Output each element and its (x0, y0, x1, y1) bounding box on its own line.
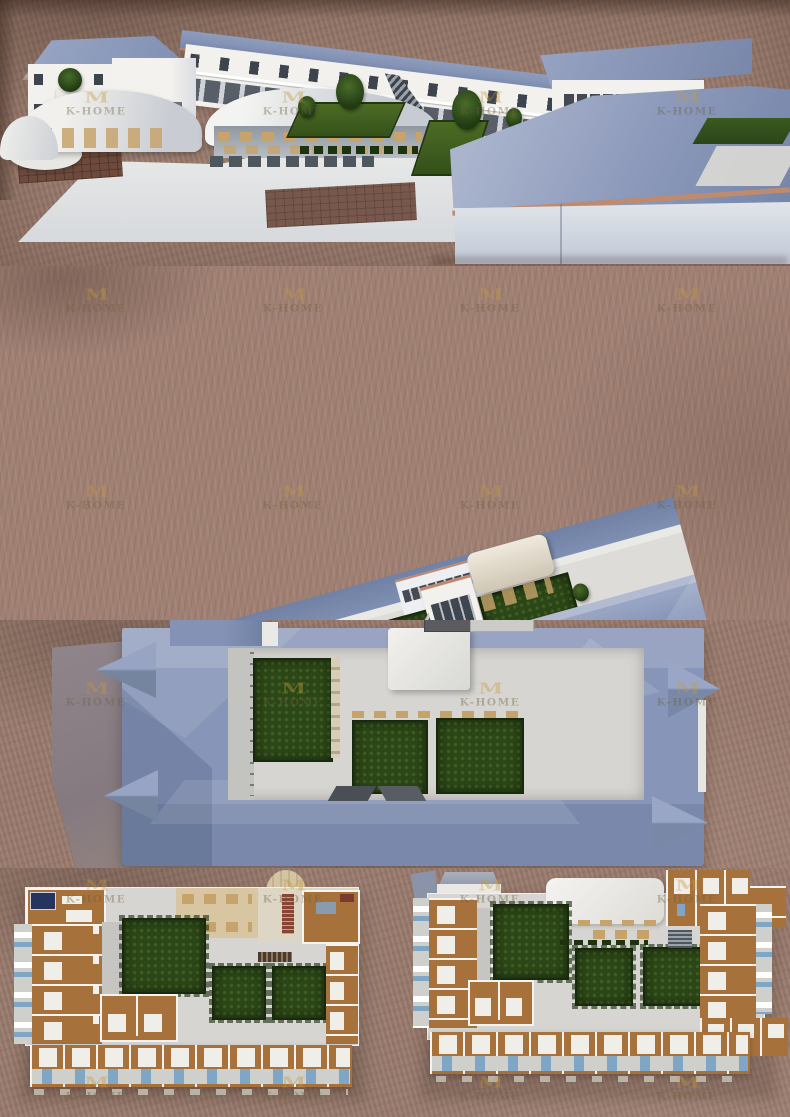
panel-top-view (0, 620, 790, 868)
panel-floor-plans (0, 868, 790, 1117)
plan2-room-divider (498, 982, 500, 1020)
entry-tables-row1 (182, 894, 252, 904)
planter-row-top (352, 711, 520, 718)
render-collage: MK-HOMEMK-HOMEMK-HOMEMK-HOMEMK-HOMEMK-HO… (0, 0, 790, 1117)
plan2-garden-big (493, 904, 569, 980)
front-building-wall (455, 202, 790, 264)
palm-tree (58, 68, 82, 92)
plan-garden-mid (212, 966, 266, 1020)
beds-right-column-2 (708, 906, 726, 1022)
plan2-bed-a (475, 998, 491, 1016)
hedge-row (300, 146, 418, 154)
paver-walk (265, 182, 417, 228)
porch-dashes (34, 1089, 348, 1095)
front-building-corner (560, 204, 562, 264)
rooftop-access-box (262, 622, 278, 646)
desks-left-column (93, 926, 99, 1042)
plan2-ladder (668, 930, 692, 948)
bottom-row-baths-2 (432, 1056, 748, 1071)
right-balcony-strip (698, 700, 706, 792)
suite-bed (66, 910, 92, 922)
staircase-red (282, 894, 294, 934)
panel-aerial-view (0, 266, 790, 620)
walkway-left (228, 648, 254, 800)
beds-right-band (330, 946, 344, 1042)
bath-column-left (14, 924, 32, 1044)
rooms-below-garden (100, 994, 178, 1042)
porch-dashes-2 (436, 1076, 744, 1082)
bottom-row-baths (32, 1069, 350, 1084)
grill-red (340, 894, 354, 902)
courtyard-canopy (388, 628, 470, 690)
top-garden-2 (352, 720, 428, 794)
top-garden-1 (253, 658, 333, 762)
kitchen-room (302, 890, 360, 944)
gable-top-protrusion (170, 620, 266, 646)
tower-block-light (470, 620, 534, 632)
bbq-grill (258, 952, 292, 962)
plan2-bed-b (506, 998, 522, 1016)
bottom-room-row (30, 1045, 352, 1087)
courtyard-tree-2 (452, 90, 482, 130)
left-canopy-tables (40, 128, 162, 148)
plan2-planter-row (560, 940, 648, 945)
plan2-rooms-below-garden (468, 980, 534, 1026)
room-column-right-2 (700, 904, 756, 1024)
bottom-row-beds (32, 1048, 350, 1067)
plan-garden-big (122, 918, 206, 994)
tower-block-dark (424, 620, 472, 632)
bottom-row-beds-2 (432, 1035, 748, 1054)
room-divider (136, 996, 138, 1036)
pavilion-planters (210, 156, 374, 167)
room-column-left (32, 924, 102, 1044)
planter-column (331, 658, 340, 758)
room-band-right (326, 944, 358, 1044)
kitchen-rug (316, 902, 336, 914)
courtyard-tree-3 (298, 96, 316, 118)
panel-perspective-view (0, 0, 790, 268)
suite-table (62, 896, 82, 904)
suite-top-left (26, 888, 106, 928)
floor-plan-right (395, 868, 790, 1117)
bed-a (108, 1014, 126, 1032)
bath-column-right-2 (756, 904, 772, 1014)
courtyard-tree-1 (336, 74, 364, 110)
right-hedge (692, 118, 790, 144)
plan2-garden-mid (575, 948, 633, 1006)
beds-left-column-2 (437, 900, 455, 1026)
utility-block (258, 888, 358, 942)
top-garden-3 (436, 718, 524, 794)
beds-left-column (44, 926, 62, 1042)
front-building-shadow (432, 256, 788, 266)
bath-column-left-2 (413, 898, 429, 1028)
ground-shadow-top (0, 0, 790, 18)
navy-bed (30, 892, 56, 910)
entry-bench-right (378, 786, 427, 801)
bottom-room-row-2 (430, 1032, 750, 1074)
building-aerial (76, 499, 734, 620)
wing-beds (668, 878, 748, 894)
floor-plan-left (0, 868, 395, 1117)
bed-b (144, 1014, 162, 1032)
plan2-tables-row (593, 930, 657, 939)
plan-garden-right (272, 966, 326, 1020)
ground-shadow-left (0, 0, 16, 200)
stair-tower-glass (431, 594, 478, 620)
